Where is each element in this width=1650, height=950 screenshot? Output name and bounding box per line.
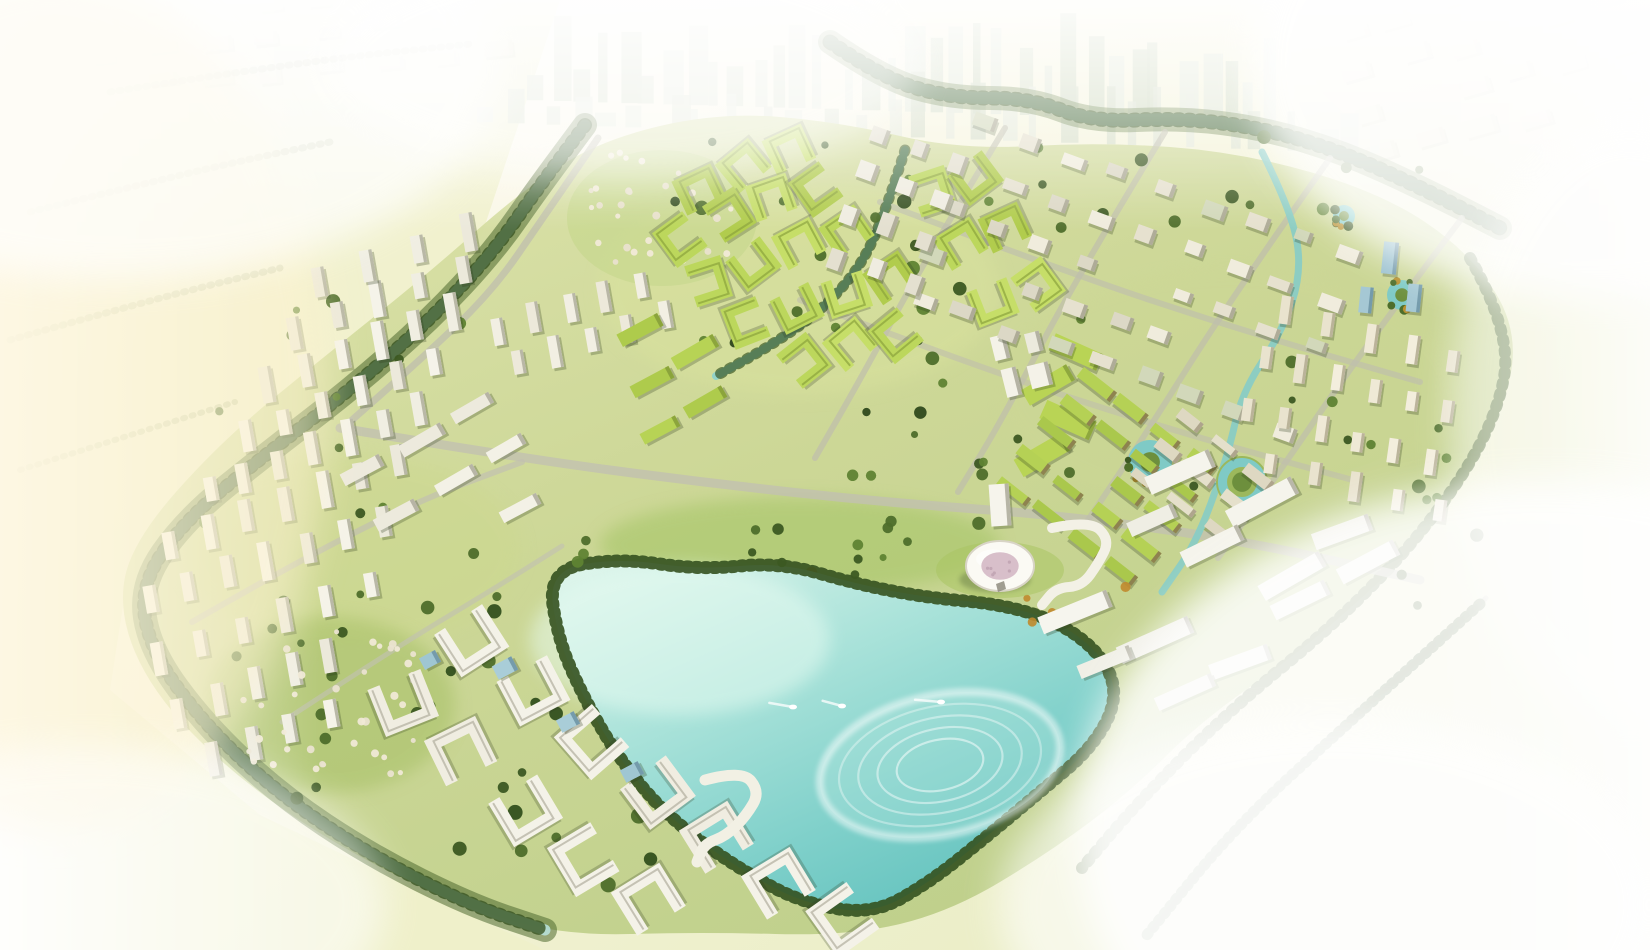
aerial-rendering — [0, 0, 1650, 950]
building — [989, 483, 1014, 529]
layers-root — [0, 0, 1650, 950]
scene-svg — [0, 0, 1650, 950]
building — [1358, 286, 1376, 316]
building — [1405, 283, 1424, 316]
tower-lakeside — [989, 483, 1014, 529]
